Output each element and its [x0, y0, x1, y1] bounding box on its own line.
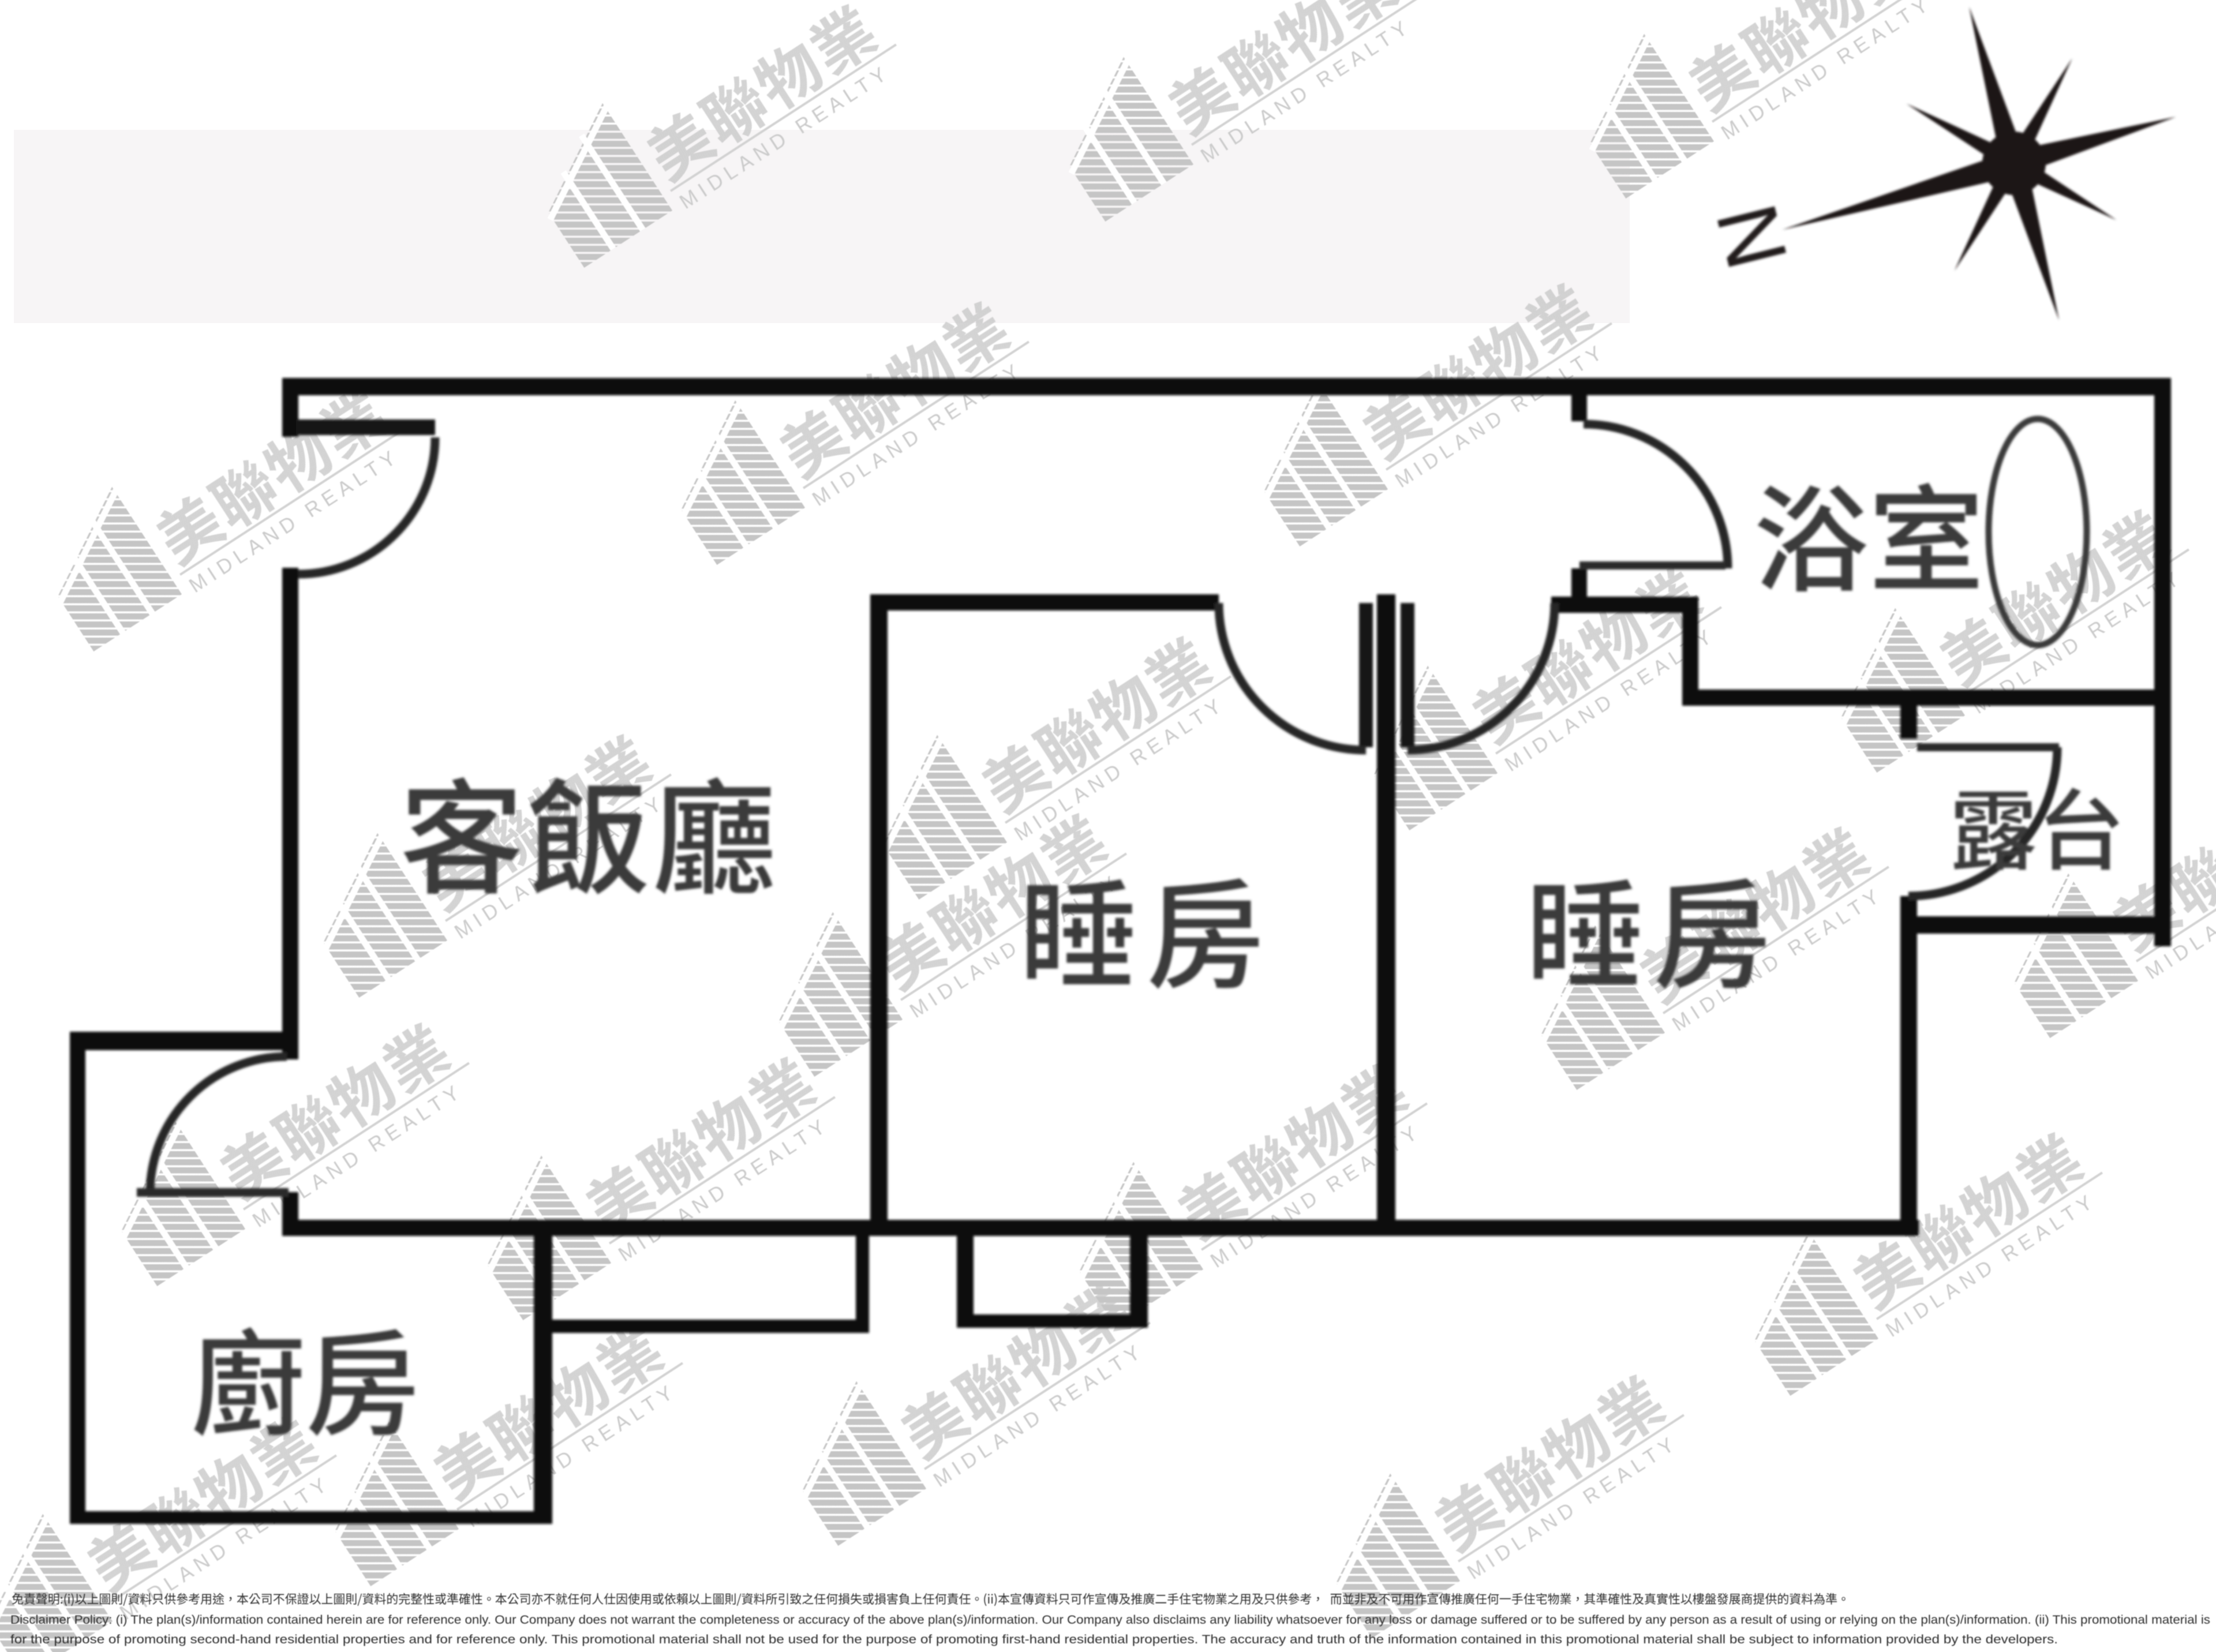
- svg-text:N: N: [1698, 195, 1806, 278]
- svg-text:for the purpose of promoting s: for the purpose of promoting second-hand…: [10, 1632, 2058, 1646]
- svg-text:Disclaimer Policy: (i) The pla: Disclaimer Policy: (i) The plan(s)/infor…: [10, 1613, 2210, 1627]
